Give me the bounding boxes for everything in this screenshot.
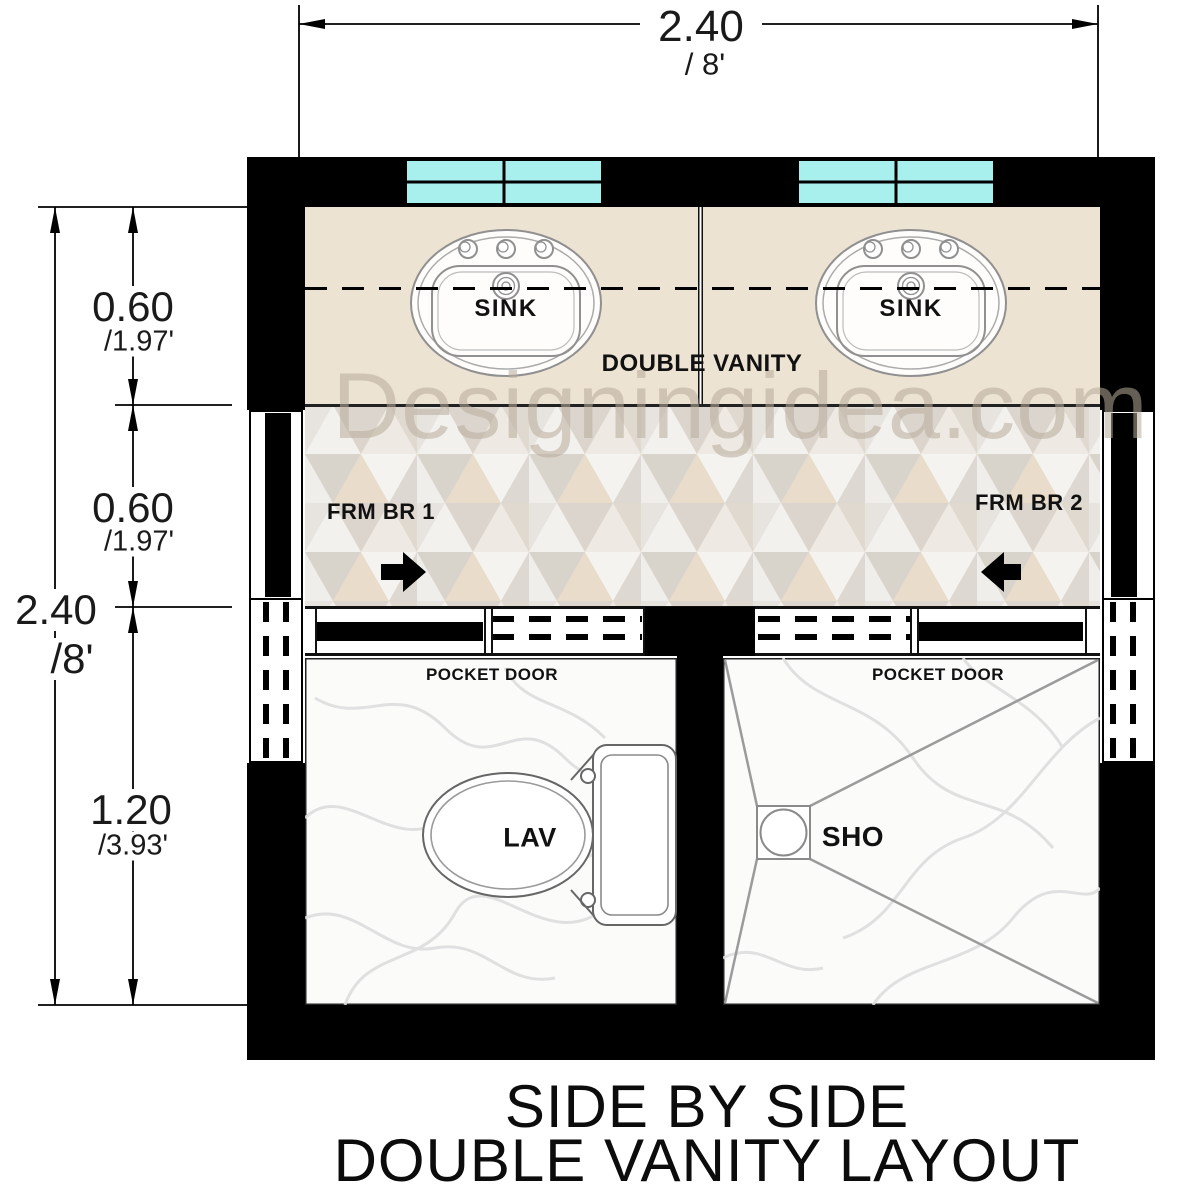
title-line-2: DOUBLE VANITY LAYOUT <box>334 1126 1081 1195</box>
shower-label: SHO <box>822 821 884 853</box>
from-bedroom-2-label: FRM BR 2 <box>975 490 1083 516</box>
toilet-label: LAV <box>503 823 557 854</box>
dim-seg2-feet: /1.97' <box>101 528 177 557</box>
dim-seg3-feet: /3.93' <box>95 832 171 861</box>
dim-width-meters: 2.40 <box>655 5 747 49</box>
from-bedroom-1-label: FRM BR 1 <box>327 499 435 525</box>
dim-overall-feet: /8' <box>47 638 96 680</box>
dim-width-feet: / 8' <box>682 49 728 80</box>
pocket-door-label-right: POCKET DOOR <box>872 665 1004 685</box>
pocket-door-label-left: POCKET DOOR <box>426 665 558 685</box>
dim-seg3-meters: 1.20 <box>87 789 175 831</box>
sink-label-right: SINK <box>879 295 942 323</box>
floor-plan-canvas: Designingidea.com <box>0 0 1200 1196</box>
dim-seg1-feet: /1.97' <box>101 328 177 357</box>
dim-overall-meters: 2.40 <box>12 589 100 631</box>
entry-direction-arrows <box>381 552 1021 592</box>
dim-seg1-meters: 0.60 <box>89 286 177 328</box>
dim-seg2-meters: 0.60 <box>89 487 177 529</box>
double-vanity-label: DOUBLE VANITY <box>602 350 803 378</box>
sink-label-left: SINK <box>474 295 537 323</box>
dimension-lines <box>0 0 1200 1196</box>
dimension-arrowheads <box>50 19 1098 1005</box>
